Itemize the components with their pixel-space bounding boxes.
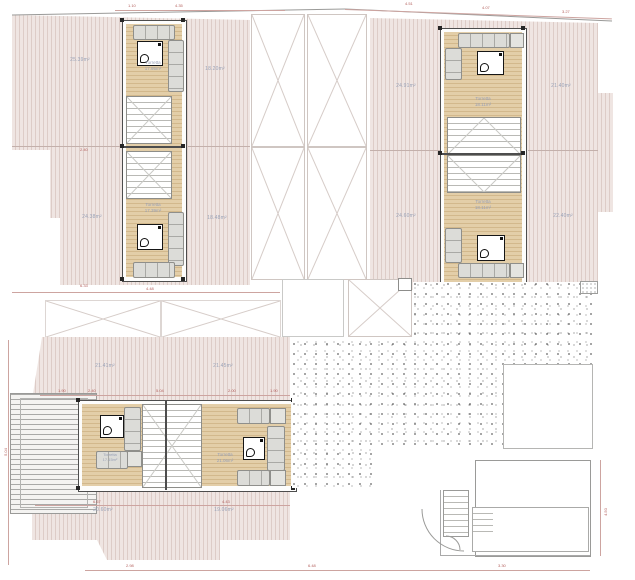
room-label-torretta: Torretta 17.15m² — [92, 452, 128, 462]
sofa — [458, 263, 510, 278]
dimension-line — [12, 292, 280, 293]
roof-opening — [282, 279, 344, 337]
skylight — [503, 364, 593, 449]
side-table — [510, 263, 524, 278]
coffee-table — [137, 224, 163, 250]
dimension-label: 2.98 — [126, 564, 134, 568]
wall-line — [440, 490, 441, 556]
coffee-table — [100, 415, 124, 438]
area-label: 25.39m² — [58, 58, 102, 64]
kettle-icon — [140, 238, 149, 247]
dimension-line — [600, 460, 601, 556]
roof-truss-x — [251, 14, 305, 147]
unit-divider-wall — [122, 146, 185, 148]
staircase — [126, 96, 172, 144]
side-table — [270, 470, 286, 486]
roof-truss-x — [307, 147, 367, 280]
dimension-label: 6.48 — [308, 564, 316, 568]
side-table — [510, 33, 524, 48]
area-label: 24.60m² — [384, 214, 428, 220]
room-area: 18.11m² — [444, 205, 522, 211]
area-label: 18.48m² — [195, 216, 239, 222]
sofa — [133, 25, 175, 40]
side-table — [270, 408, 286, 424]
dimension-label: 2.40 — [80, 148, 88, 152]
terrace-divider — [528, 150, 598, 151]
area-label: 22.40m² — [541, 214, 585, 220]
dimension-label: 3.30 — [498, 564, 506, 568]
dimension-label: 5.04 — [4, 448, 8, 456]
wall-post — [120, 18, 124, 22]
staircase — [443, 490, 469, 537]
corner-dot-icon — [499, 53, 502, 56]
wall-post — [521, 151, 525, 155]
area-label: 18.20m² — [193, 67, 237, 73]
dimension-line — [115, 10, 285, 11]
dimension-line — [8, 340, 9, 565]
kettle-icon — [480, 63, 489, 72]
wall-post — [120, 144, 124, 148]
floor-plan: 25.39m² 24.38m² 18.20m² 18.48m² Torretta… — [0, 0, 635, 580]
terrace-divider — [12, 146, 122, 147]
terrace-divider — [188, 146, 250, 147]
dimension-label: 2.40 — [88, 389, 96, 393]
room-label-torretta: Torretta 17.95m² — [126, 60, 180, 71]
dimension-label: 3.27 — [562, 10, 570, 14]
corner-dot-icon — [500, 237, 503, 240]
wall-post — [76, 398, 80, 402]
area-label: 20.60m² — [81, 508, 125, 514]
sofa — [458, 33, 510, 48]
dimension-line — [40, 395, 290, 396]
roof-vent — [580, 281, 598, 294]
roof-truss-x — [161, 300, 281, 338]
corner-dot-icon — [158, 43, 161, 46]
dimension-label: 4.07 — [482, 6, 490, 10]
dimension-label: 6.33 — [80, 284, 88, 288]
area-label: 21.41m² — [83, 364, 127, 370]
room-area: 17.95m² — [126, 66, 180, 72]
corner-dot-icon — [260, 439, 263, 442]
sofa — [445, 228, 462, 263]
sofa — [267, 426, 285, 471]
area-label: 21.45m² — [201, 364, 245, 370]
dimension-label: 2.00 — [228, 389, 236, 393]
sofa — [133, 262, 175, 278]
sofa — [168, 212, 184, 266]
wall-post — [181, 18, 185, 22]
roof-truss-x — [307, 14, 367, 147]
room-label-torretta: Torretta 21.06m² — [205, 452, 245, 463]
dimension-label: 1.90 — [58, 389, 66, 393]
corner-dot-icon — [119, 417, 122, 420]
dimension-label: 5.04 — [156, 389, 164, 393]
room-area: 17.39m² — [126, 208, 180, 214]
staircase — [126, 151, 172, 199]
area-label: 19.06m² — [202, 508, 246, 514]
dimension-line — [345, 9, 612, 19]
unit-divider-wall — [165, 400, 167, 490]
wall-post — [120, 277, 124, 281]
area-label: 24.91m² — [384, 84, 428, 90]
room-area: 21.06m² — [205, 458, 245, 464]
wall-post — [181, 144, 185, 148]
sofa — [237, 470, 270, 486]
wall-post — [438, 151, 442, 155]
dimension-line — [35, 505, 290, 506]
coffee-table — [477, 235, 505, 261]
dimension-label: 4.48 — [146, 287, 154, 291]
room-label-torretta: Torretta 18.11m² — [444, 199, 522, 210]
dimension-label: 4.43 — [222, 500, 230, 504]
room-label-torretta: Torretta 18.11m² — [444, 96, 522, 107]
dimension-label: 4.51 — [405, 2, 413, 6]
roof-truss-x — [45, 300, 161, 338]
side-table — [127, 451, 142, 467]
kettle-icon — [480, 249, 489, 258]
room-label-torretta: Torretta 17.39m² — [126, 202, 180, 213]
dimension-label: 1.10 — [128, 4, 136, 8]
dimension-label: 6.67 — [93, 500, 101, 504]
wall-post — [181, 277, 185, 281]
terrace-divider — [370, 150, 440, 151]
wall-post — [76, 486, 80, 490]
coffee-table — [243, 437, 265, 460]
staircase — [447, 155, 521, 193]
dimension-line — [85, 570, 590, 571]
sofa — [445, 48, 462, 80]
staircase — [142, 404, 202, 488]
corner-dot-icon — [158, 226, 161, 229]
kettle-icon — [103, 426, 112, 435]
dimension-label: 1.90 — [270, 389, 278, 393]
staircase — [447, 117, 521, 155]
stair-steps — [473, 508, 493, 536]
wall-post — [521, 26, 525, 30]
area-label: 21.40m² — [539, 84, 583, 90]
area-label: 24.38m² — [70, 215, 114, 221]
unit-divider-wall — [440, 153, 525, 155]
sofa — [124, 407, 141, 451]
roof-hatch — [398, 278, 412, 291]
wall-post — [438, 26, 442, 30]
coffee-table — [477, 51, 504, 75]
room-area: 17.15m² — [92, 457, 128, 462]
roof-truss-x — [251, 147, 305, 280]
kettle-icon — [246, 448, 255, 457]
room-area: 18.11m² — [444, 102, 522, 108]
sofa — [237, 408, 270, 424]
wall-line — [440, 555, 590, 556]
dimension-label: 4.50 — [604, 508, 608, 516]
dimension-label: 4.35 — [175, 4, 183, 8]
